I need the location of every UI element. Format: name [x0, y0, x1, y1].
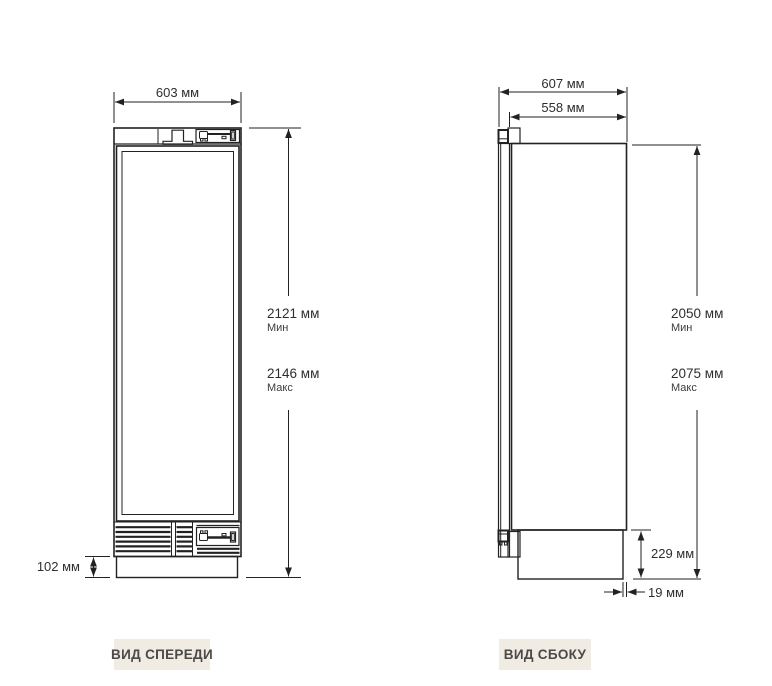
side-depth-total-dimension: 607 мм	[520, 76, 606, 91]
side-view-dimension-lines	[499, 87, 701, 597]
front-grille-slats	[116, 526, 240, 553]
front-height-min-dimension: 2121 мм	[267, 306, 319, 321]
front-height-min-note: Мин	[267, 322, 288, 335]
front-plinth-height-dimension: 102 мм	[18, 559, 80, 574]
dimension-diagram: 603 мм 2121 мм Мин 2146 мм Макс 102 мм 6…	[0, 0, 772, 686]
side-base-offset-dimension: 19 мм	[648, 585, 684, 600]
front-view-drawing	[114, 128, 241, 578]
side-height-max-note: Макс	[671, 382, 697, 395]
side-height-min-note: Мин	[671, 322, 692, 335]
side-view-caption: ВИД СБОКУ	[499, 639, 591, 670]
front-height-max-dimension: 2146 мм	[267, 366, 319, 381]
front-width-dimension: 603 мм	[114, 85, 241, 100]
front-height-max-note: Макс	[267, 382, 293, 395]
side-depth-body-dimension: 558 мм	[520, 100, 606, 115]
side-height-min-dimension: 2050 мм	[671, 306, 723, 321]
front-view-caption: ВИД СПЕРЕДИ	[114, 639, 210, 670]
front-top-hinge-icon	[200, 131, 236, 142]
side-height-max-dimension: 2075 мм	[671, 366, 723, 381]
front-bottom-hinge-icon	[200, 531, 236, 542]
side-view-drawing	[499, 128, 627, 579]
side-base-height-dimension: 229 мм	[651, 546, 694, 561]
technical-drawing	[0, 0, 772, 686]
